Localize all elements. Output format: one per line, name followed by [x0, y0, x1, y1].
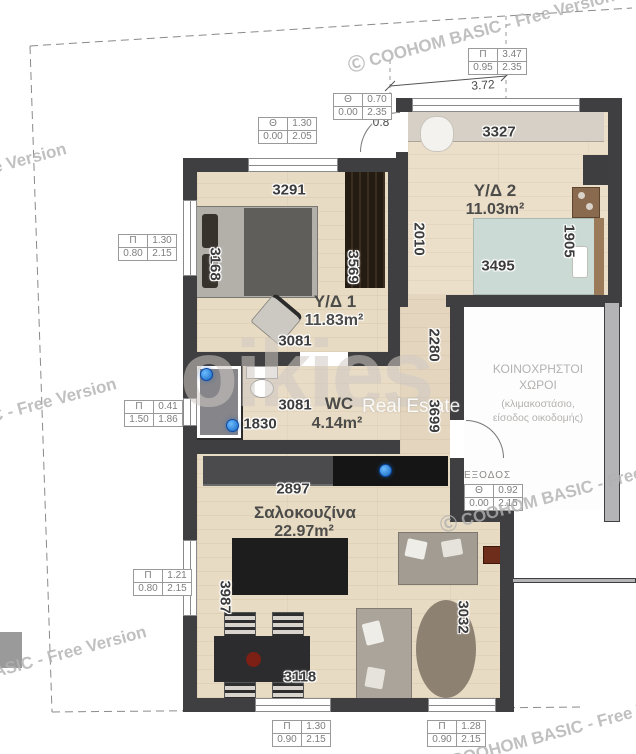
dining-chair-2 — [272, 612, 304, 638]
side-table-red — [483, 546, 501, 564]
opening-height: 2.15 — [163, 583, 192, 596]
dining-chair-1 — [224, 612, 256, 638]
opening-width: 1.30 — [148, 235, 177, 248]
bedroom2-area: 11.03m² — [466, 201, 525, 219]
tv-unit — [232, 538, 348, 595]
opening-symbol: Π — [119, 235, 148, 248]
common-area-desc-2: είσοδος οικοδομής) — [462, 412, 614, 424]
dim-wc-left: 1830 — [243, 416, 276, 433]
balcony-edge — [512, 578, 636, 583]
dim-bedroom1-right: 3569 — [345, 250, 362, 283]
opening-sill: 0.95 — [469, 62, 498, 75]
dim-living-top: 2897 — [276, 481, 309, 498]
wall-bedroom2-right — [608, 98, 622, 302]
dim-bedroom1-top: 3291 — [272, 182, 305, 199]
dim-corridor-lower: 3699 — [426, 399, 443, 432]
window-bottom-right — [428, 698, 496, 712]
dim-living-left: 3987 — [217, 580, 234, 613]
window-bedroom2-top — [412, 98, 580, 112]
opening-table-window-left-middle: Π0.41 1.501.86 — [124, 400, 183, 427]
dim-bedroom1-left: 3168 — [207, 247, 224, 280]
opening-width: 1.28 — [457, 721, 486, 734]
opening-height: 2.35 — [363, 107, 392, 120]
floor-plan-canvas: Υ/Δ 1 11.83m² Υ/Δ 2 11.03m² WC 4.14m² Σα… — [0, 0, 636, 754]
opening-symbol: Θ — [465, 485, 494, 498]
opening-table-window-bottom-left: Π1.30 0.902.15 — [272, 720, 331, 747]
dim-site-width: 3.72 — [471, 77, 495, 93]
beanbag — [420, 116, 454, 152]
dim-bedroom2-left: 2010 — [411, 222, 428, 255]
opening-width: 0.41 — [154, 401, 183, 414]
common-area-name-1: ΚΟΙΝΟΧΡΗΣΤΟΙ — [462, 362, 614, 376]
fixture-marker-icon[interactable] — [226, 419, 239, 432]
opening-width: 1.30 — [288, 118, 317, 131]
opening-table-window-left-lower: Π1.21 0.802.15 — [133, 569, 192, 596]
opening-symbol: Θ — [259, 118, 288, 131]
dim-bedroom2-bed: 3495 — [481, 258, 514, 275]
bed1-pillow-1 — [202, 214, 218, 248]
opening-height: 2.15 — [302, 734, 331, 747]
opening-table-window-top-left: Θ1.30 0.002.05 — [258, 117, 317, 144]
opening-width: 1.30 — [302, 721, 331, 734]
living-name: Σαλοκουζίνα — [254, 503, 356, 523]
opening-height: 2.15 — [148, 248, 177, 261]
opening-table-door-top: Θ0.70 0.002.35 — [333, 93, 392, 120]
opening-symbol: Θ — [334, 94, 363, 107]
sofa-bottom-pillow-2 — [364, 667, 385, 690]
kitchen-counter — [203, 456, 333, 486]
opening-sill: 0.00 — [334, 107, 363, 120]
bed2-frame — [594, 218, 604, 295]
dim-bedroom1-bottom: 3081 — [278, 333, 311, 350]
opening-width: 0.70 — [363, 94, 392, 107]
dim-living-table: 3118 — [284, 669, 317, 686]
opening-height: 2.05 — [288, 131, 317, 144]
wall-mid-left-stub — [396, 295, 408, 307]
opening-width: 1.21 — [163, 570, 192, 583]
bed1-blanket — [244, 208, 312, 296]
fixture-marker-icon[interactable] — [200, 368, 213, 381]
exit-label: ΕΞΟΔΟΣ — [464, 470, 511, 481]
bedroom2-pier — [583, 155, 608, 185]
opening-height: 1.86 — [154, 414, 183, 427]
opening-height: 2.35 — [498, 62, 527, 75]
oikies-logo-subtext: Real Estate — [362, 396, 460, 418]
bedroom1-area: 11.83m² — [305, 312, 364, 330]
bedroom2-name: Υ/Δ 2 — [474, 181, 516, 201]
opening-sill: 0.80 — [134, 583, 163, 596]
opening-symbol: Π — [125, 401, 154, 414]
wall-stairwell-top — [446, 295, 622, 307]
opening-sill: 1.50 — [125, 414, 154, 427]
vanity-knob-2 — [586, 203, 593, 210]
opening-width: 3.47 — [498, 49, 527, 62]
opening-symbol: Π — [428, 721, 457, 734]
opening-sill: 0.90 — [273, 734, 302, 747]
wall-wc-bottom — [183, 440, 400, 454]
opening-sill: 0.80 — [119, 248, 148, 261]
common-area-name-2: ΧΩΡΟΙ — [462, 378, 614, 392]
window-bedroom1-top — [248, 158, 338, 172]
opening-table-window-top-right: Π3.47 0.952.35 — [468, 48, 527, 75]
dim-living-right: 3032 — [455, 600, 472, 633]
opening-sill: 0.00 — [259, 131, 288, 144]
vanity — [572, 187, 600, 218]
sofa-top-pillow-1 — [404, 538, 427, 560]
common-area-desc-1: (κλιμακοστάσιο, — [462, 398, 614, 410]
opening-table-window-left-upper: Π1.30 0.802.15 — [118, 234, 177, 261]
opening-symbol: Π — [134, 570, 163, 583]
table-bowl — [246, 652, 261, 667]
window-left-upper — [183, 200, 197, 276]
window-bottom-left — [255, 698, 331, 712]
opening-symbol: Π — [273, 721, 302, 734]
bedroom1-name: Υ/Δ 1 — [314, 292, 356, 312]
sofa-top-pillow-2 — [441, 538, 463, 557]
dim-bedroom2-right: 1905 — [561, 224, 578, 257]
living-area: 22.97m² — [274, 523, 334, 541]
dim-corridor-upper: 2280 — [426, 328, 443, 361]
opening-symbol: Π — [469, 49, 498, 62]
dim-bedroom2-top: 3327 — [482, 124, 515, 141]
wc-area: 4.14m² — [312, 415, 363, 433]
wc-name: WC — [325, 394, 353, 414]
dim-wc-width: 3081 — [278, 397, 311, 414]
wall-living-right — [500, 515, 514, 712]
fixture-marker-icon[interactable] — [379, 464, 392, 477]
vanity-knob-1 — [578, 192, 585, 199]
